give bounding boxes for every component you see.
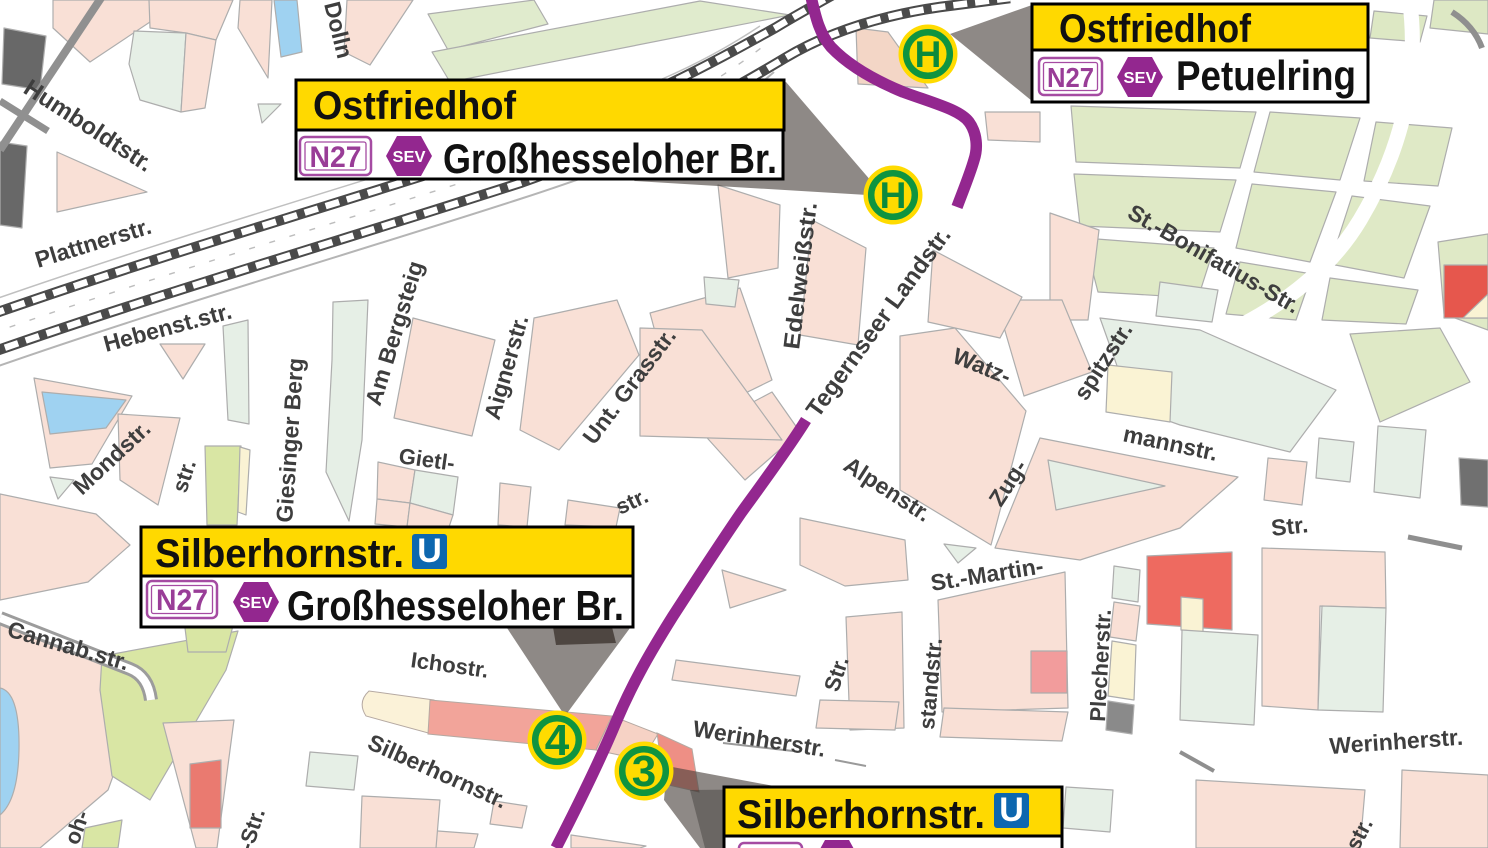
svg-text:Silberhornstr.: Silberhornstr. <box>155 532 404 576</box>
svg-text:4: 4 <box>545 716 570 765</box>
svg-text:Großhesseloher Br.: Großhesseloher Br. <box>443 135 777 182</box>
svg-text:U: U <box>417 532 442 570</box>
svg-text:N27: N27 <box>1047 62 1094 93</box>
svg-text:SEV: SEV <box>1124 70 1157 87</box>
svg-text:Großhesseloher Br.: Großhesseloher Br. <box>287 582 624 629</box>
svg-text:3: 3 <box>632 747 656 796</box>
svg-text:SEV: SEV <box>393 149 426 166</box>
svg-text:Ostfriedhof: Ostfriedhof <box>1059 7 1252 51</box>
svg-text:U: U <box>999 791 1024 829</box>
svg-text:N27: N27 <box>310 141 362 174</box>
svg-text:Silberhornstr.: Silberhornstr. <box>737 793 985 837</box>
svg-text:Petuelring: Petuelring <box>1176 52 1356 99</box>
svg-text:Str.: Str. <box>1270 511 1310 541</box>
svg-text:H: H <box>915 34 942 75</box>
svg-text:SEV: SEV <box>240 595 273 612</box>
svg-text:Ostfriedhof: Ostfriedhof <box>313 84 517 128</box>
svg-text:N27: N27 <box>156 584 208 617</box>
svg-text:H: H <box>880 175 907 216</box>
